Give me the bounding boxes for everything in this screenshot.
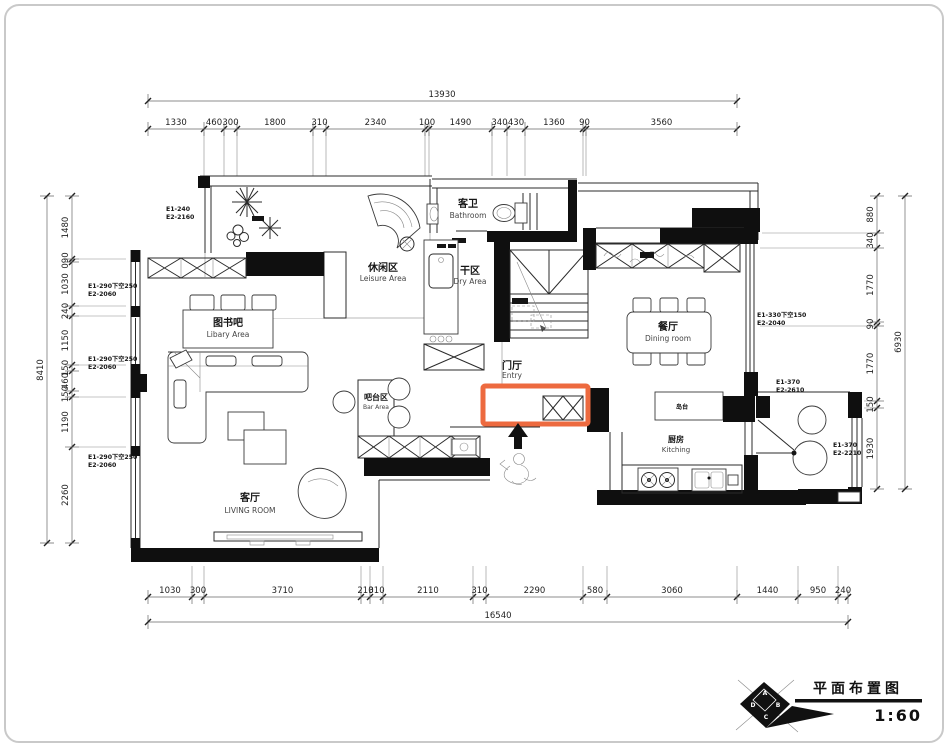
floor-plan-drawing: 1330460300180031023401001490340430136090… — [0, 0, 949, 748]
dim-total-left: 8410 — [36, 359, 46, 381]
window-tag: E1-370 — [776, 379, 801, 386]
window-tag: E2-2210 — [833, 450, 862, 457]
dim-label: 1440 — [757, 586, 779, 596]
drawing-title: 平面布置图 — [813, 680, 903, 697]
living-label-en: LIVING ROOM — [224, 506, 275, 515]
window-tag: E2-2040 — [757, 320, 786, 327]
page-border — [5, 5, 943, 742]
living-label-zh: 客厅 — [239, 491, 260, 504]
dim-label: 1150 — [61, 330, 71, 352]
dim-label: 240 — [835, 586, 851, 596]
dim-label: 1770 — [866, 353, 876, 375]
island-counter: 岛台 — [655, 392, 723, 420]
dim-total-top: 13930 — [428, 90, 455, 100]
dim-label: 300 — [222, 118, 238, 128]
dim-label: 240 — [61, 303, 71, 319]
window-tag: E1-240 — [166, 206, 191, 213]
kitchen-sink-icon — [692, 469, 726, 491]
window-tag: E1-330下空150 — [757, 311, 807, 319]
dim-total-right: 6930 — [894, 331, 904, 353]
window-tag: E2-2160 — [166, 214, 195, 221]
entry-label-en: Entry — [502, 371, 523, 380]
logo-letter-c: C — [764, 714, 769, 721]
dim-label: 2260 — [61, 484, 71, 506]
dim-label: 2340 — [365, 118, 387, 128]
library-label-en: Libary Area — [207, 330, 250, 339]
kitchen-label-zh: 厨房 — [668, 434, 684, 444]
dim-label: 340 — [866, 232, 876, 248]
logo-letter-a: A — [763, 690, 768, 697]
island-label: 岛台 — [676, 403, 688, 411]
window-tag: E2-2060 — [88, 462, 117, 469]
dim-label: 1770 — [866, 274, 876, 296]
dim-label: 1490 — [450, 118, 472, 128]
dim-label: 950 — [810, 586, 826, 596]
bar-label-en: Bar Area — [363, 404, 389, 411]
window-tag: E1-290下空250 — [88, 355, 138, 363]
dim-label: 90 — [866, 319, 876, 330]
dim-label: 3710 — [272, 586, 294, 596]
window-tag: E1-290下空250 — [88, 282, 138, 290]
dim-label: 1190 — [61, 411, 71, 433]
dim-label: 3060 — [661, 586, 683, 596]
dim-label: 3560 — [651, 118, 673, 128]
dim-label: 310 — [471, 586, 487, 596]
stool-icon — [388, 378, 410, 400]
round-fixture — [793, 441, 827, 475]
dim-label: 100 — [419, 118, 435, 128]
logo-letter-d: D — [751, 702, 756, 709]
bathroom-label-zh: 客卫 — [457, 197, 478, 210]
dim-label: 090 — [61, 252, 71, 268]
window-tag: E2-2060 — [88, 364, 117, 371]
dim-label: 1480 — [61, 217, 71, 239]
stool-icon — [388, 406, 410, 428]
dim-label: 310 — [368, 586, 384, 596]
dry-label-en: Dry Area — [454, 277, 487, 286]
sink-icon — [427, 204, 438, 224]
dim-label: 1030 — [61, 273, 71, 295]
leisure-label-zh: 休闲区 — [367, 261, 398, 274]
floor-plan-page: 1330460300180031023401001490340430136090… — [0, 0, 949, 748]
window-tag: E2-2060 — [88, 291, 117, 298]
dim-label: 300 — [190, 586, 206, 596]
dim-label: 2290 — [524, 586, 546, 596]
dim-label: 90 — [579, 118, 590, 128]
dim-label: 340 — [491, 118, 507, 128]
dim-label: 1360 — [543, 118, 565, 128]
toilet-icon — [493, 203, 527, 223]
stool-icon — [333, 391, 355, 413]
logo-letter-b: B — [776, 702, 781, 709]
dim-label: 150 — [866, 396, 876, 412]
round-fixture — [798, 406, 826, 434]
dim-total-bottom: 16540 — [484, 611, 511, 621]
dim-label: 1030 — [159, 586, 181, 596]
dining-label-zh: 餐厅 — [657, 320, 678, 333]
window-tag: E2-2610 — [776, 387, 805, 394]
window-tag: E1-290下空250 — [88, 453, 138, 461]
drawing-scale: 1:60 — [874, 706, 922, 725]
dry-label-zh: 干区 — [460, 265, 480, 277]
dim-label: 1800 — [264, 118, 286, 128]
dim-label: 1330 — [165, 118, 187, 128]
dim-label: 460 — [206, 118, 222, 128]
tiny-label — [252, 216, 264, 221]
dim-label: 430 — [508, 118, 524, 128]
tiny-label — [512, 298, 528, 304]
leisure-label-en: Leisure Area — [360, 274, 407, 283]
dim-label: 1930 — [866, 438, 876, 460]
title-underline — [795, 699, 922, 703]
dim-label: 580 — [587, 586, 603, 596]
bathroom-label-en: Bathroom — [450, 211, 487, 220]
library-label-zh: 图书吧 — [213, 316, 243, 329]
dim-label: 880 — [866, 206, 876, 222]
dim-label: 310 — [311, 118, 327, 128]
window-tag: E1-370 — [833, 442, 858, 449]
stove-icon — [638, 468, 678, 491]
dining-label-en: Dining room — [645, 334, 691, 343]
bar-label-zh: 吧台区 — [364, 392, 388, 402]
kitchen-label-en: Kitching — [662, 446, 690, 454]
coffee-table — [244, 430, 286, 464]
dim-label: 2110 — [417, 586, 439, 596]
dim-label: 150 — [61, 386, 71, 402]
